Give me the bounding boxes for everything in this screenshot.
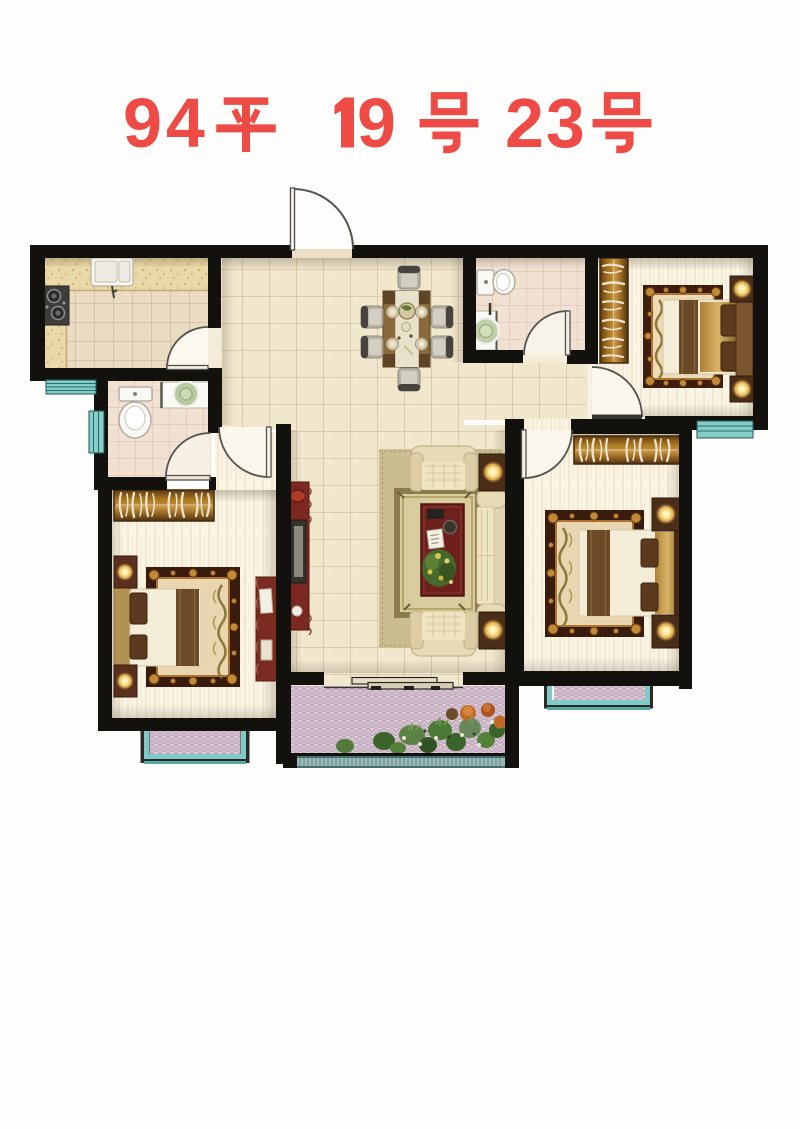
svg-text:9: 9 [357, 84, 396, 162]
svg-text:94: 94 [123, 84, 209, 162]
svg-text:23: 23 [505, 84, 587, 162]
